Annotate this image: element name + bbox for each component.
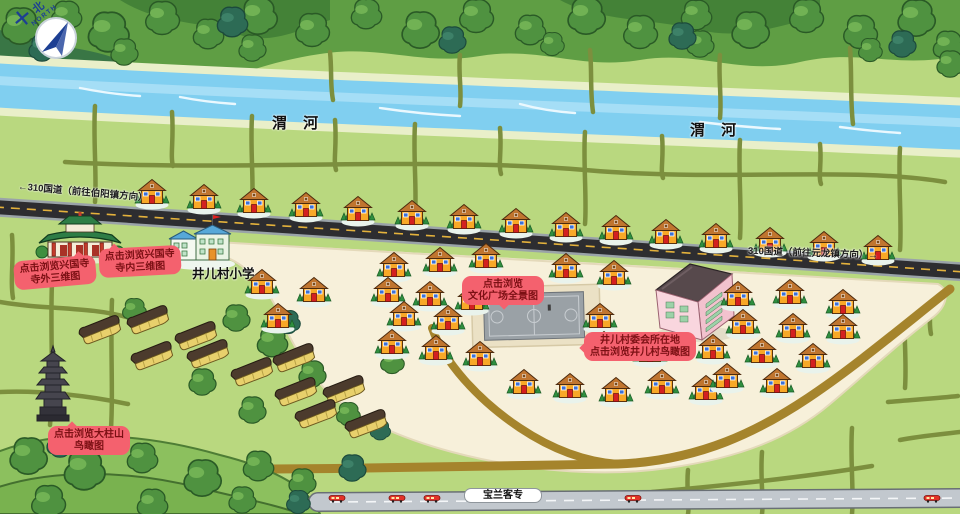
- tree-icon: [217, 7, 247, 37]
- river-label-west: 渭 河: [272, 112, 324, 133]
- tree-icon: [624, 16, 658, 49]
- callout-line: 点击浏览: [468, 279, 538, 291]
- school-label: 井儿村小学: [192, 263, 255, 282]
- callout-line: 文化广场全景图: [468, 291, 538, 303]
- river-label-east: 渭 河: [690, 119, 742, 140]
- tree-icon: [402, 12, 439, 48]
- railway-label: 宝兰客专: [464, 488, 542, 503]
- tree-icon: [568, 0, 605, 34]
- village-map: 北 NORTH 渭 河 渭 河 ←310国道（前往伯阳镇方向） 310国道（前往…: [0, 0, 960, 514]
- callout-line: 点击浏览大柱山: [54, 429, 124, 441]
- compass: 北 NORTH: [4, 0, 96, 74]
- tree-icon: [239, 397, 266, 423]
- callout-culture-square[interactable]: 点击浏览文化广场全景图: [462, 276, 544, 305]
- tree-icon: [111, 39, 138, 65]
- tree-icon: [889, 31, 916, 57]
- tree-icon: [184, 460, 221, 496]
- tree-icon: [223, 305, 250, 331]
- tree-icon: [127, 443, 157, 473]
- tree-icon: [732, 12, 769, 48]
- tree-icon: [137, 489, 167, 514]
- tree-icon: [243, 451, 273, 481]
- tree-icon: [189, 369, 216, 395]
- tree-icon: [146, 2, 180, 35]
- tree-icon: [439, 27, 466, 53]
- tree-icon: [64, 450, 105, 489]
- callout-line: 点击浏览井儿村鸟瞰图: [590, 347, 690, 359]
- tree-icon: [239, 35, 266, 61]
- tree-icon: [669, 23, 696, 49]
- tree-icon: [10, 438, 47, 474]
- tree-icon: [460, 0, 494, 33]
- tree-icon: [229, 487, 256, 513]
- tree-icon: [937, 51, 960, 77]
- callout-dazhushan[interactable]: 点击浏览大柱山鸟瞰图: [48, 426, 130, 455]
- tree-icon: [296, 14, 330, 47]
- callout-village-committee[interactable]: 井儿村委会所在地点击浏览井儿村鸟瞰图: [584, 332, 696, 361]
- tree-icon: [339, 455, 366, 481]
- callout-line: 井儿村委会所在地: [590, 335, 690, 347]
- tree-icon: [515, 15, 545, 45]
- callout-temple-interior[interactable]: 点击浏览兴国寺寺内三维图: [98, 245, 181, 278]
- tree-icon: [287, 491, 311, 514]
- callout-line: 鸟瞰图: [54, 441, 124, 453]
- tree-icon: [32, 486, 66, 514]
- tree-icon: [541, 33, 565, 56]
- tree-icon: [859, 39, 883, 62]
- tree-icon: [351, 0, 381, 29]
- tree-icon: [790, 0, 824, 33]
